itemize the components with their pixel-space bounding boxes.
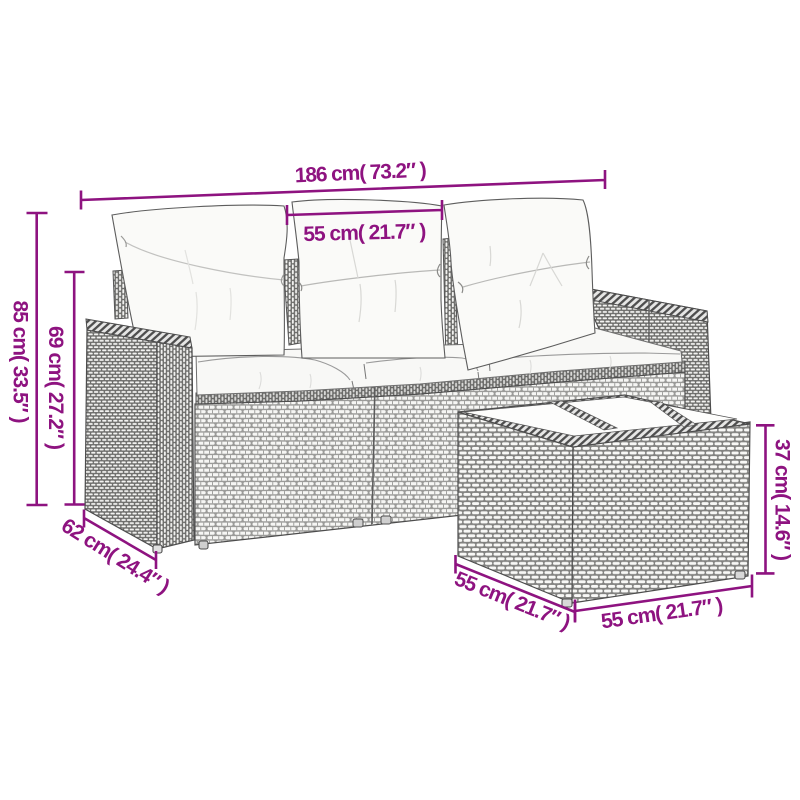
svg-text:37 cm( 14.6″ ): 37 cm( 14.6″ ) [771, 439, 794, 561]
svg-text:85 cm( 33.5″ ): 85 cm( 33.5″ ) [9, 301, 32, 424]
svg-text:55 cm( 21.7″ ): 55 cm( 21.7″ ) [303, 220, 427, 246]
svg-text:69 cm( 27.2″ ): 69 cm( 27.2″ ) [44, 326, 67, 450]
